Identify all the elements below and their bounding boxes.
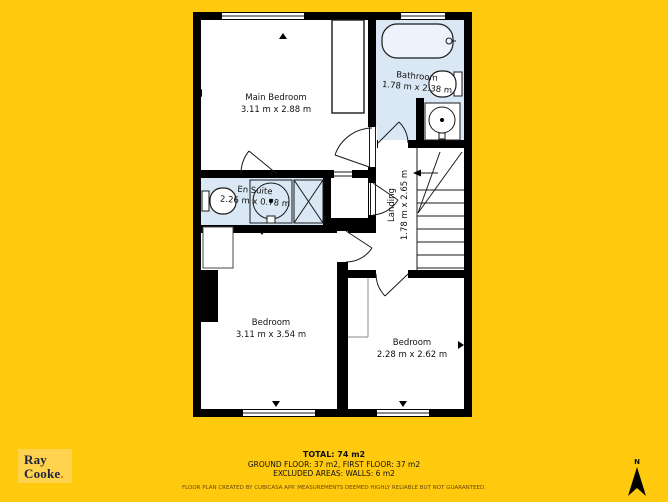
- north-arrow-icon: [624, 466, 650, 498]
- closet-hotpress: [331, 178, 368, 218]
- label-landing: Landing: [387, 188, 397, 222]
- plan-summary: TOTAL: 74 m2 GROUND FLOOR: 37 m2, FIRST …: [0, 450, 668, 492]
- disclaimer: FLOOR PLAN CREATED BY CUBICASA APP. MEAS…: [0, 485, 668, 492]
- compass-north-label: N: [624, 459, 650, 466]
- label-bedroom-right: Bedroom: [393, 338, 431, 348]
- window: [240, 410, 318, 417]
- wardrobe: [332, 20, 364, 113]
- wall: [416, 98, 424, 148]
- compass: N: [624, 459, 650, 502]
- room-landing-lower: [348, 233, 376, 270]
- floor-plan-page: { "plan": { "rooms": { "main_bedroom": {…: [0, 0, 668, 501]
- total-area: TOTAL: 74 m2: [0, 450, 668, 460]
- window: [398, 13, 448, 20]
- window: [219, 13, 307, 20]
- excluded-areas: EXCLUDED AREAS: WALLS: 6 m2: [0, 469, 668, 478]
- floor-areas: GROUND FLOOR: 37 m2, FIRST FLOOR: 37 m2: [0, 460, 668, 469]
- dims-landing: 1.78 m x 2.65 m: [400, 170, 410, 240]
- dims-bedroom-right: 2.28 m x 2.62 m: [377, 350, 447, 360]
- floor-plan-drawing: Main Bedroom 3.11 m x 2.88 m Bathroom 1.…: [0, 0, 668, 501]
- label-main-bedroom: Main Bedroom: [245, 93, 306, 103]
- closet: [203, 227, 233, 268]
- dims-bedroom-left: 3.11 m x 3.54 m: [236, 330, 306, 340]
- dims-main-bedroom: 3.11 m x 2.88 m: [241, 105, 311, 115]
- sink: [425, 103, 460, 140]
- bathtub: [382, 24, 456, 58]
- window: [374, 410, 432, 417]
- label-bedroom-left: Bedroom: [252, 318, 290, 328]
- chimney-breast: [201, 270, 218, 322]
